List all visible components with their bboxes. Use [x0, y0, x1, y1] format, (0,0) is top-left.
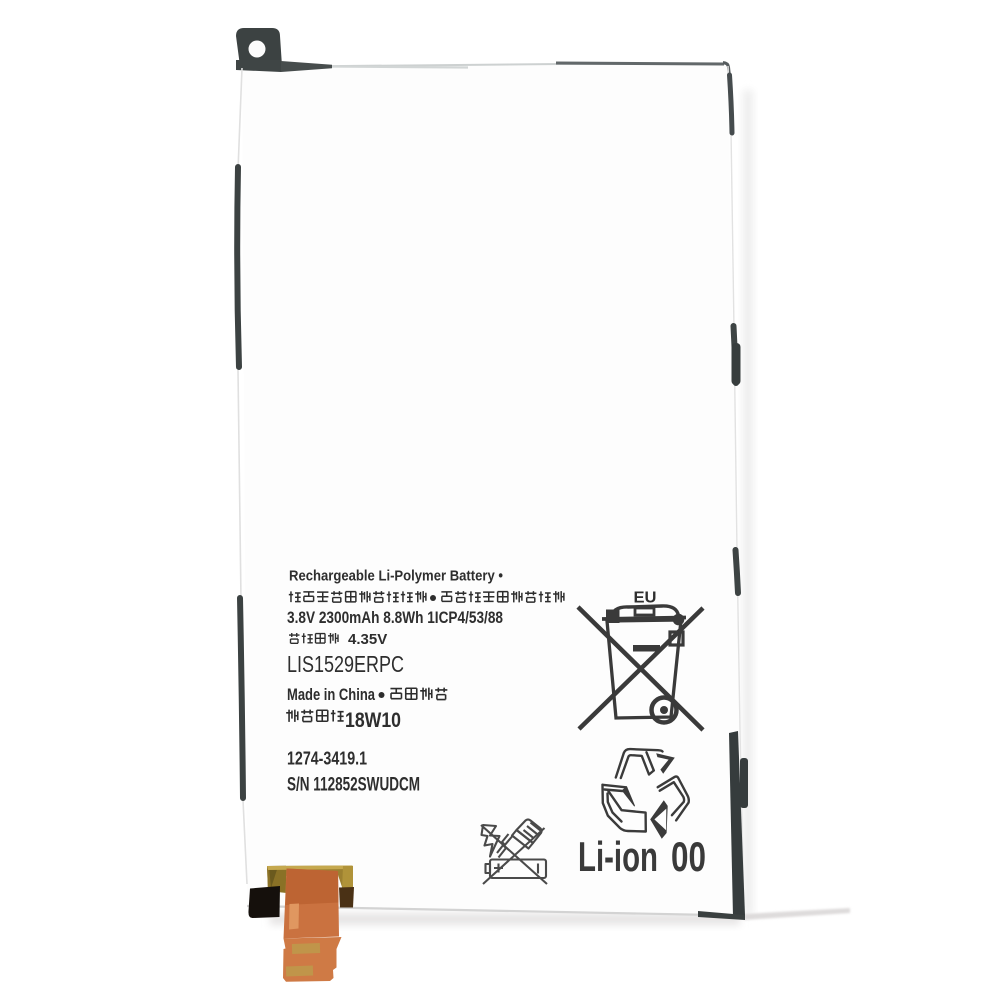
svg-text:3.8V 2300mAh 8.8Wh 1ICP4/53/88: 3.8V 2300mAh 8.8Wh 1ICP4/53/88: [287, 608, 503, 627]
svg-text:LIS1529ERPC: LIS1529ERPC: [287, 651, 404, 677]
svg-text:Rechargeable Li-Polymer Batter: Rechargeable Li-Polymer Battery •: [289, 568, 503, 585]
svg-text:18W10: 18W10: [345, 709, 401, 732]
svg-text:EU: EU: [634, 590, 657, 607]
svg-text:Made in China: Made in China: [287, 686, 376, 704]
svg-text:00: 00: [671, 833, 706, 880]
svg-text:S/N 112852SWUDCM: S/N 112852SWUDCM: [287, 774, 420, 796]
svg-text:Li-ion: Li-ion: [578, 833, 658, 880]
svg-text:4.35V: 4.35V: [348, 631, 387, 648]
svg-text:1274-3419.1: 1274-3419.1: [287, 748, 367, 769]
